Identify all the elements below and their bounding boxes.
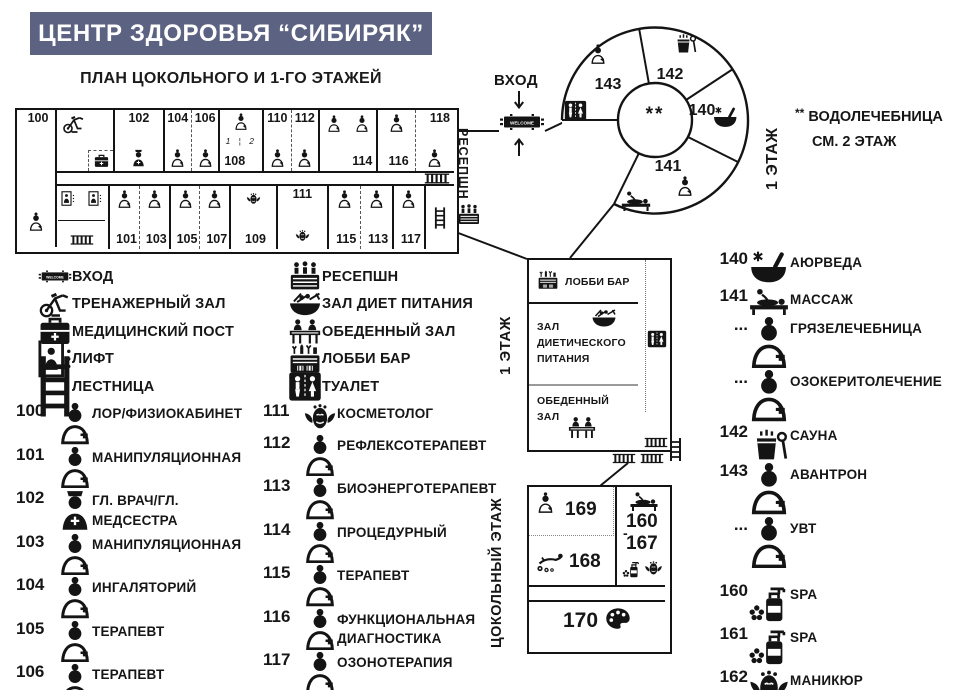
sector-number: 142 bbox=[648, 66, 692, 84]
lobby-bar-icon bbox=[537, 270, 559, 291]
basement-floor-label: ЦОКОЛЬНЫЙ ЭТАЖ bbox=[489, 488, 505, 648]
room-number: 103 bbox=[140, 231, 169, 249]
room-number: 114 bbox=[263, 520, 303, 540]
legend-item: WELCOMEВХОД bbox=[38, 263, 234, 291]
cosmetology-icon bbox=[644, 560, 663, 577]
doctor-icon bbox=[234, 113, 248, 130]
doctor-icon bbox=[748, 315, 790, 369]
room-number: 108 bbox=[220, 153, 262, 171]
elevators-row bbox=[55, 186, 108, 206]
room-number: 168 bbox=[569, 551, 601, 573]
massage-icon bbox=[629, 491, 659, 511]
room-list-item: 142САУНА bbox=[698, 422, 958, 462]
sauna-icon bbox=[748, 422, 790, 462]
room-label: ГРЯЗЕЛЕЧЕБНИЦА bbox=[790, 315, 958, 339]
stairs-icon bbox=[640, 453, 664, 464]
legend-label: ОБЕДЕННЫЙ ЗАЛ bbox=[322, 324, 455, 340]
legend-item: ЛЕСТНИЦА bbox=[38, 373, 234, 401]
room-label: БИОЭНЕРГОТЕРАПЕВТ bbox=[337, 476, 487, 499]
doctor-icon bbox=[303, 433, 337, 477]
room-number: 160 bbox=[626, 511, 658, 533]
room-label: ФУНКЦИОНАЛЬНАЯ ДИАГНОСТИКА bbox=[337, 607, 487, 649]
arrow-up-icon bbox=[513, 136, 525, 158]
legend-column-a: WELCOMEВХОДТРЕНАЖЕРНЫЙ ЗАЛМЕДИЦИНСКИЙ ПО… bbox=[38, 263, 234, 401]
first-floor-label: 1 ЭТАЖ bbox=[497, 300, 514, 375]
room-list-100s: 100ЛОР/ФИЗИОКАБИНЕТ101МАНИПУЛЯЦИОННАЯ102… bbox=[16, 401, 267, 690]
room-label: SPA bbox=[790, 624, 958, 648]
doctor-icon bbox=[198, 149, 213, 167]
room-number: 118 bbox=[416, 110, 454, 126]
legend-label: ЗАЛ ДИЕТ ПИТАНИЯ bbox=[322, 296, 473, 312]
dining-hall-room: ОБЕДЕННЫЙ ЗАЛ bbox=[529, 386, 638, 444]
plan-utility-cell bbox=[424, 186, 454, 249]
wc-icon bbox=[564, 100, 587, 121]
nurse-icon bbox=[58, 488, 92, 532]
room-number: 169 bbox=[565, 499, 597, 521]
room-number: 103 bbox=[16, 532, 58, 552]
legend-column-b: РЕСЕПШНЗАЛ ДИЕТ ПИТАНИЯОБЕДЕННЫЙ ЗАЛЛОББ… bbox=[288, 263, 473, 401]
dining-icon bbox=[288, 318, 322, 345]
room-label: МАССАЖ bbox=[790, 286, 958, 310]
room-170-cell: 170 bbox=[529, 598, 665, 647]
room-number: 162 bbox=[698, 667, 748, 687]
doctor-icons-row bbox=[320, 110, 376, 132]
reception-icon bbox=[288, 261, 322, 292]
doctor-icon bbox=[117, 190, 132, 208]
room-number: 102 bbox=[16, 488, 58, 508]
doctor-icon bbox=[270, 149, 285, 167]
room-list-item: 115ТЕРАПЕВТ bbox=[263, 563, 487, 607]
doctor-icon bbox=[303, 563, 337, 607]
plan-room-118: 118 bbox=[415, 110, 454, 171]
legend-label: ЛИФТ bbox=[72, 351, 114, 367]
spa-icon bbox=[748, 581, 790, 624]
room-160-167-cell: 160 - 167 bbox=[615, 487, 667, 585]
doctor-icon bbox=[29, 212, 44, 231]
plan-room-105: 105 bbox=[169, 186, 200, 249]
room-list-item: 113БИОЭНЕРГОТЕРАПЕВТ bbox=[263, 476, 487, 520]
room-label: МАНИКЮР bbox=[790, 667, 958, 690]
room-number: 101 bbox=[110, 231, 139, 249]
sector-number: 143 bbox=[586, 76, 630, 94]
room-number: 141 bbox=[698, 286, 748, 306]
plan-bottom-row: 101103105107109111115113117 bbox=[55, 184, 454, 249]
room-label: ОЗОКЕРИТОЛЕЧЕНИЕ bbox=[790, 368, 958, 392]
room-list-item: 114ПРОЦЕДУРНЫЙ bbox=[263, 520, 487, 564]
room-list-140s-160s: 140АЮРВЕДА141МАССАЖ...ГРЯЗЕЛЕЧЕБНИЦА...О… bbox=[698, 249, 958, 690]
room-number: 140 bbox=[698, 249, 748, 269]
room-label: ОЗОНОТЕРАПИЯ bbox=[337, 650, 487, 673]
reception-label: РЕСЕПШН bbox=[456, 128, 470, 200]
sector-number: 141 bbox=[646, 158, 690, 176]
legend-label: ВХОД bbox=[72, 269, 113, 285]
cosmetology-icon bbox=[748, 667, 790, 690]
sauna-icon bbox=[672, 30, 698, 54]
legend-label: МЕДИЦИНСКИЙ ПОСТ bbox=[72, 324, 234, 340]
plan-room-115: 115 bbox=[327, 186, 360, 249]
svg-text:WELCOME: WELCOME bbox=[46, 276, 64, 280]
room-list-item: ...УВТ bbox=[698, 515, 958, 569]
room-label: АЮРВЕДА bbox=[790, 249, 958, 273]
wc-icon bbox=[288, 371, 322, 402]
elevator-icon bbox=[88, 191, 102, 206]
room-number: 104 bbox=[165, 110, 191, 126]
room-number: 112 bbox=[263, 433, 303, 453]
plan-room-101: 101 bbox=[108, 186, 139, 249]
legend-label: ЛЕСТНИЦА bbox=[72, 379, 154, 395]
room-number: 113 bbox=[361, 231, 392, 249]
plan-room-116: 116 bbox=[376, 110, 414, 171]
plan-room-110: 110 bbox=[262, 110, 290, 171]
cosmetology-icon bbox=[295, 227, 310, 245]
plan-room-108: 1 ¦ 2108 bbox=[218, 110, 262, 171]
dining-icon bbox=[567, 416, 597, 439]
room-list-item: 105ТЕРАПЕВТ bbox=[16, 619, 267, 663]
doctor-icon bbox=[337, 190, 352, 208]
welcome-mat-icon: WELCOME bbox=[38, 269, 72, 284]
note-block: ** ВОДОЛЕЧЕБНИЦА СМ. 2 ЭТАЖ bbox=[795, 103, 970, 156]
room-label: САУНА bbox=[790, 422, 958, 446]
ayurveda-icon bbox=[712, 106, 739, 129]
plan-room-117: 117 bbox=[392, 186, 425, 249]
circle-floor-label: 1 ЭТАЖ bbox=[764, 98, 782, 190]
room-number: 115 bbox=[263, 563, 303, 583]
page-title: ЦЕНТР ЗДОРОВЬЯ “СИБИРЯК” bbox=[30, 12, 432, 55]
plan-room-113: 113 bbox=[360, 186, 392, 249]
room-number: 116 bbox=[378, 153, 414, 171]
stairs-icon bbox=[644, 437, 668, 448]
room-list-item: 162МАНИКЮР bbox=[698, 667, 958, 690]
elevator-icon bbox=[61, 191, 75, 206]
medical-case-icon bbox=[93, 154, 110, 168]
room-list-item: 143АВАНТРОН bbox=[698, 461, 958, 515]
room-label: SPA bbox=[790, 581, 958, 605]
room-number: 105 bbox=[171, 231, 200, 249]
plan-room-103: 103 bbox=[139, 186, 169, 249]
doctor-icon bbox=[303, 650, 337, 690]
room-number: 117 bbox=[263, 650, 303, 670]
room-number: 115 bbox=[329, 231, 360, 249]
room-label: УВТ bbox=[790, 515, 958, 539]
wc-icon bbox=[647, 330, 667, 348]
palette-icon bbox=[605, 607, 631, 631]
massage-icon bbox=[620, 190, 652, 211]
legend-label: ЛОББИ БАР bbox=[322, 351, 411, 367]
plan-room-104: 104 bbox=[163, 110, 191, 171]
room-label: МАНИПУЛЯЦИОННАЯ bbox=[92, 445, 267, 468]
room-label: АВАНТРОН bbox=[790, 461, 958, 485]
diet-bowl-icon bbox=[288, 291, 322, 317]
plan-subtitle: ПЛАН ЦОКОЛЬНОГО И 1-ГО ЭТАЖЕЙ bbox=[30, 70, 432, 88]
doctor-icon bbox=[58, 662, 92, 690]
divider bbox=[58, 220, 105, 221]
legend-item: ЛОББИ БАР bbox=[288, 346, 473, 374]
room-number: 100 bbox=[17, 110, 55, 126]
plan-utility-cell bbox=[55, 186, 108, 249]
room-list-item: 102ГЛ. ВРАЧ/ГЛ. МЕДСЕСТРА bbox=[16, 488, 267, 532]
room-number: 111 bbox=[263, 401, 303, 421]
doctor-icon bbox=[427, 149, 442, 167]
stairs-icon bbox=[424, 173, 450, 184]
room-number: 107 bbox=[200, 231, 229, 249]
note-marker: ** bbox=[795, 106, 804, 120]
legend-item: ЗАЛ ДИЕТ ПИТАНИЯ bbox=[288, 291, 473, 319]
room-label: ТЕРАПЕВТ bbox=[92, 662, 267, 685]
spa-icon bbox=[622, 559, 641, 579]
room-label: ЛОББИ БАР bbox=[565, 275, 630, 291]
stairs-icon bbox=[70, 235, 94, 245]
doctor-icon bbox=[389, 114, 404, 132]
doctor-icon bbox=[303, 607, 337, 651]
exercise-bike-icon bbox=[38, 290, 72, 318]
room-label: ПРОЦЕДУРНЫЙ bbox=[337, 520, 487, 543]
doctor-icon bbox=[748, 461, 790, 515]
room-number: 109 bbox=[231, 231, 276, 249]
room-number: 170 bbox=[563, 609, 598, 633]
nurse-icon bbox=[131, 149, 146, 167]
doctor-icon bbox=[58, 532, 92, 576]
note-line2: СМ. 2 ЭТАЖ bbox=[795, 134, 896, 150]
plan-room-102: 102 bbox=[113, 110, 162, 171]
basement-building: 169 160 - 167 168 170 bbox=[527, 485, 672, 654]
room-169-cell: 169 bbox=[529, 487, 614, 536]
legend-label: ТРЕНАЖЕРНЫЙ ЗАЛ bbox=[72, 296, 226, 312]
room-label: ИНГАЛЯТОРИЙ bbox=[92, 575, 267, 598]
ayurveda-icon bbox=[748, 249, 790, 286]
doctor-icon bbox=[401, 190, 416, 208]
room-number: ... bbox=[698, 315, 748, 335]
room-number: 117 bbox=[394, 231, 425, 249]
doctor-icon bbox=[748, 515, 790, 569]
room-label: КОСМЕТОЛОГ bbox=[337, 401, 487, 424]
doctor-icon bbox=[58, 401, 92, 445]
room-number: 110 bbox=[264, 110, 290, 126]
arrow-down-icon bbox=[513, 90, 525, 110]
cosmetology-icon bbox=[246, 190, 261, 208]
room-number: 112 bbox=[292, 110, 318, 126]
room-number: 143 bbox=[698, 461, 748, 481]
doctor-icon bbox=[369, 190, 384, 208]
mech-massage-icon bbox=[535, 551, 565, 573]
doctor-icon bbox=[590, 44, 606, 64]
lobby-bar-room: ЛОББИ БАР bbox=[529, 260, 638, 304]
note-line1: ВОДОЛЕЧЕБНИЦА bbox=[808, 109, 943, 125]
room-number: 104 bbox=[16, 575, 58, 595]
massage-icon bbox=[748, 286, 790, 315]
entrance-label: ВХОД bbox=[494, 72, 538, 89]
room-list-item: 103МАНИПУЛЯЦИОННАЯ bbox=[16, 532, 267, 576]
room-label: ГЛ. ВРАЧ/ГЛ. МЕДСЕСТРА bbox=[92, 488, 267, 530]
room-number: 106 bbox=[16, 662, 58, 682]
room-number: 113 bbox=[263, 476, 303, 496]
exercise-bike-icon bbox=[61, 114, 87, 134]
doctor-icon bbox=[178, 190, 193, 208]
sub-room-numbers: 1 ¦ 2 bbox=[220, 137, 262, 146]
main-floor-plan: 100 1021041061 ¦ 2108110112114116118 101… bbox=[15, 108, 459, 254]
diet-hall-room: ЗАЛ ДИЕТИЧЕСКОГО ПИТАНИЯ bbox=[529, 304, 638, 386]
doctor-icon bbox=[327, 115, 341, 132]
room-list-item: 111КОСМЕТОЛОГ bbox=[263, 401, 487, 433]
room-list-item: 100ЛОР/ФИЗИОКАБИНЕТ bbox=[16, 401, 267, 445]
room-list-item: 116ФУНКЦИОНАЛЬНАЯ ДИАГНОСТИКА bbox=[263, 607, 487, 651]
doctor-icon bbox=[207, 190, 222, 208]
doctor-icon bbox=[170, 149, 185, 167]
doctor-icon bbox=[537, 492, 554, 513]
room-label: ТЕРАПЕВТ bbox=[337, 563, 487, 586]
doctor-icon bbox=[297, 149, 312, 167]
room-list-item: 106ТЕРАПЕВТ bbox=[16, 662, 267, 690]
room-number: 160 bbox=[698, 581, 748, 601]
stairs-icon bbox=[612, 453, 636, 464]
svg-text:WELCOME: WELCOME bbox=[510, 121, 534, 126]
doctor-icon bbox=[58, 619, 92, 663]
room-number: ... bbox=[698, 515, 748, 535]
lobby-bar-icon bbox=[288, 344, 322, 375]
room-list-item: 104ИНГАЛЯТОРИЙ bbox=[16, 575, 267, 619]
room-list-110s: 111КОСМЕТОЛОГ112РЕФЛЕКСОТЕРАПЕВТ113БИОЭН… bbox=[263, 401, 487, 690]
cosmetology-icon bbox=[303, 401, 337, 433]
welcome-mat-icon: WELCOME bbox=[499, 112, 545, 132]
room-number: 142 bbox=[698, 422, 748, 442]
legend-label: РЕСЕПШН bbox=[322, 269, 398, 285]
doctor-icon bbox=[748, 368, 790, 422]
room-list-item: 101МАНИПУЛЯЦИОННАЯ bbox=[16, 445, 267, 489]
room-list-item: 117ОЗОНОТЕРАПИЯ bbox=[263, 650, 487, 690]
room-list-item: 112РЕФЛЕКСОТЕРАПЕВТ bbox=[263, 433, 487, 477]
room-number: 114 bbox=[320, 153, 376, 171]
plan-top-row: 1021041061 ¦ 2108110112114116118 bbox=[55, 110, 454, 173]
plan-room-111: 111 bbox=[276, 186, 327, 249]
legend-item: РЕСЕПШН bbox=[288, 263, 473, 291]
room-number: 100 bbox=[16, 401, 58, 421]
plan-room-107: 107 bbox=[199, 186, 229, 249]
plan-room-106: 106 bbox=[191, 110, 218, 171]
room-number: 101 bbox=[16, 445, 58, 465]
plan-room-114: 114 bbox=[318, 110, 376, 171]
room-number: 161 bbox=[698, 624, 748, 644]
doctor-icon bbox=[147, 190, 162, 208]
room-list-item: ...ГРЯЗЕЛЕЧЕБНИЦА bbox=[698, 315, 958, 369]
doctor-icon bbox=[303, 476, 337, 520]
room-list-item: 161SPA bbox=[698, 624, 958, 667]
doctor-icon bbox=[355, 115, 369, 132]
reception-icon bbox=[457, 204, 481, 226]
plan-corridor bbox=[55, 173, 454, 184]
room-label: РЕФЛЕКСОТЕРАПЕВТ bbox=[337, 433, 487, 456]
room-list-item: ...ОЗОКЕРИТОЛЕЧЕНИЕ bbox=[698, 368, 958, 422]
room-number: 102 bbox=[115, 110, 162, 126]
room-list-item: 160SPA bbox=[698, 581, 958, 624]
diet-bowl-icon bbox=[591, 308, 617, 328]
room-number: 167 bbox=[626, 533, 658, 555]
room-list-item: 141МАССАЖ bbox=[698, 286, 958, 315]
plan-utility-cell bbox=[55, 110, 113, 171]
room-list-item: 140АЮРВЕДА bbox=[698, 249, 958, 286]
legend-label: ТУАЛЕТ bbox=[322, 379, 379, 395]
building-hallway bbox=[645, 260, 670, 412]
center-marker: ** bbox=[634, 104, 676, 126]
room-168-cell: 168 bbox=[529, 537, 613, 585]
room-number: 105 bbox=[16, 619, 58, 639]
room-number: ... bbox=[698, 368, 748, 388]
ladder-icon bbox=[434, 206, 446, 230]
room-number: 106 bbox=[192, 110, 218, 126]
ladder-icon bbox=[669, 436, 682, 463]
legend-item: ТРЕНАЖЕРНЫЙ ЗАЛ bbox=[38, 291, 234, 319]
floor-plan-poster: ЦЕНТР ЗДОРОВЬЯ “СИБИРЯК” ПЛАН ЦОКОЛЬНОГО… bbox=[0, 0, 980, 690]
plan-room-109: 109 bbox=[229, 186, 276, 249]
room-number: 116 bbox=[263, 607, 303, 627]
first-floor-building: ЛОББИ БАР ЗАЛ ДИЕТИЧЕСКОГО ПИТАНИЯ ОБЕДЕ… bbox=[527, 258, 672, 452]
spa-icon bbox=[748, 624, 790, 667]
plan-room-112: 112 bbox=[291, 110, 318, 171]
legend-item: ОБЕДЕННЫЙ ЗАЛ bbox=[288, 318, 473, 346]
doctor-icon bbox=[58, 575, 92, 619]
room-number: 111 bbox=[278, 186, 327, 202]
legend-item: ТУАЛЕТ bbox=[288, 373, 473, 401]
room-label: ТЕРАПЕВТ bbox=[92, 619, 267, 642]
medical-post-nook bbox=[88, 150, 113, 171]
room-label: МАНИПУЛЯЦИОННАЯ bbox=[92, 532, 267, 555]
doctor-icon bbox=[58, 445, 92, 489]
room-100-cell: 100 bbox=[17, 110, 57, 247]
doctor-icon bbox=[303, 520, 337, 564]
room-label: ЛОР/ФИЗИОКАБИНЕТ bbox=[92, 401, 267, 424]
doctor-icon bbox=[677, 176, 693, 196]
